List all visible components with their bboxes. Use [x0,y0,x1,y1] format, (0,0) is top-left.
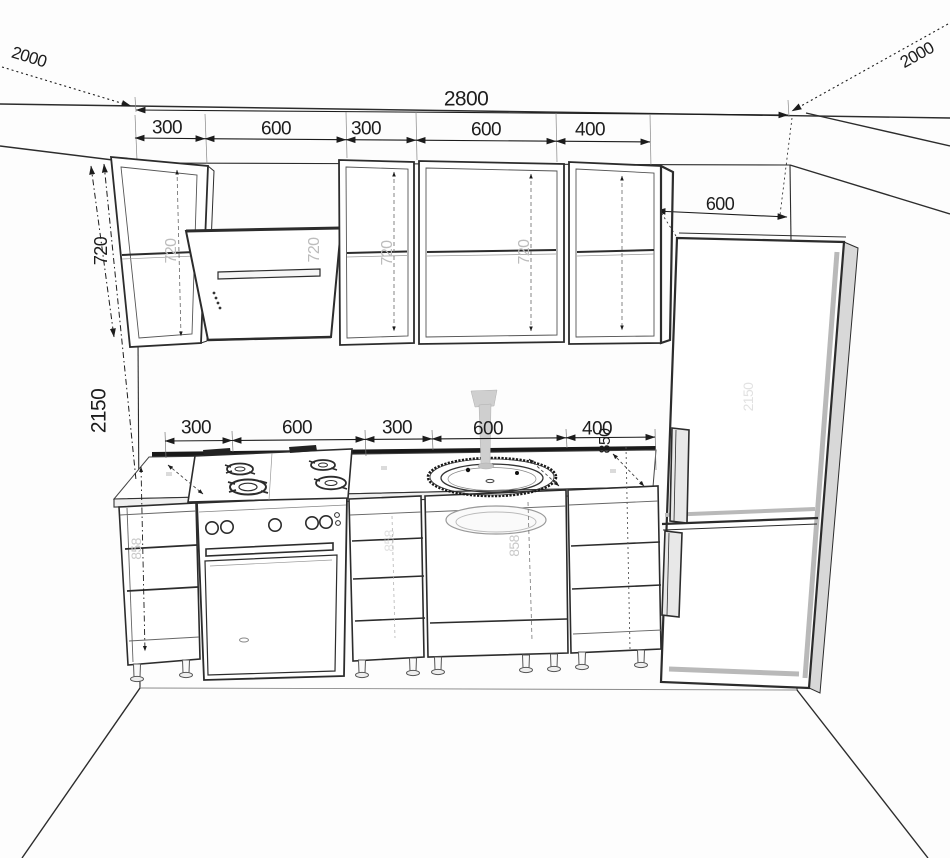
watermark-2150-fridge: 2150 [741,383,755,412]
dim-counter-segment-1: 300 [181,419,211,438]
wall-cabinet-400 [569,162,673,344]
dim-total-height: 2150 [89,389,110,433]
watermark-858-left-base: 858 [129,538,143,560]
base-cabinet-left-300 [119,503,200,665]
watermark-858-mid-base: 858 [382,530,396,552]
dim-top-segment-4: 600 [471,121,501,140]
dim-top-segment-1: 300 [152,119,182,138]
dim-top-segment-5: 400 [575,121,605,140]
left-depth-dim-line [2,67,131,106]
base-cabinet-right-400 [568,486,662,653]
watermark-720-left-cabinet: 720 [164,239,180,264]
oven-door [205,555,337,675]
range-oven [197,496,347,680]
wall-cabinet-300 [339,160,414,345]
dim-fridge-width: 600 [706,195,734,213]
kitchen-elevation-drawing: 2000 2000 2800 300 600 300 600 400 600 7… [0,0,950,858]
right-wall-top-edge [790,165,950,214]
refrigerator [661,233,858,693]
watermark-720-hood: 720 [307,238,323,263]
dim-counter-segment-2: 600 [282,419,312,438]
dim-top-segment-3: 300 [351,120,381,139]
watermark-720-cabinet-600: 720 [517,240,533,265]
dim-overall-width: 2800 [444,89,488,110]
wall-cabinet-600 [419,161,564,344]
dim-counter-segment-3: 300 [382,419,412,438]
watermark-858-sink-base: 858 [507,535,521,557]
fridge-handle-upper [670,428,689,523]
fridge-handle-lower [662,531,682,617]
sink-bowl-inside [446,506,546,534]
top-segment-dim-lines [135,138,650,142]
back-floor-line [140,688,797,690]
dim-counter-segment-4: 600 [473,420,503,439]
gas-cooktop [188,445,352,502]
right-floor-edge [797,690,928,858]
dim-top-segment-2: 600 [261,120,291,139]
dim-wall-cabinet-height: 720 [92,237,110,265]
watermark-720-cabinet-300: 720 [380,241,396,266]
base-cabinet-mid-300 [349,496,425,661]
sink-base-cabinet-600 [425,490,568,657]
dim-counter-height: 850 [598,429,614,454]
left-floor-edge [22,688,140,858]
right-depth-dim-line [792,24,948,111]
